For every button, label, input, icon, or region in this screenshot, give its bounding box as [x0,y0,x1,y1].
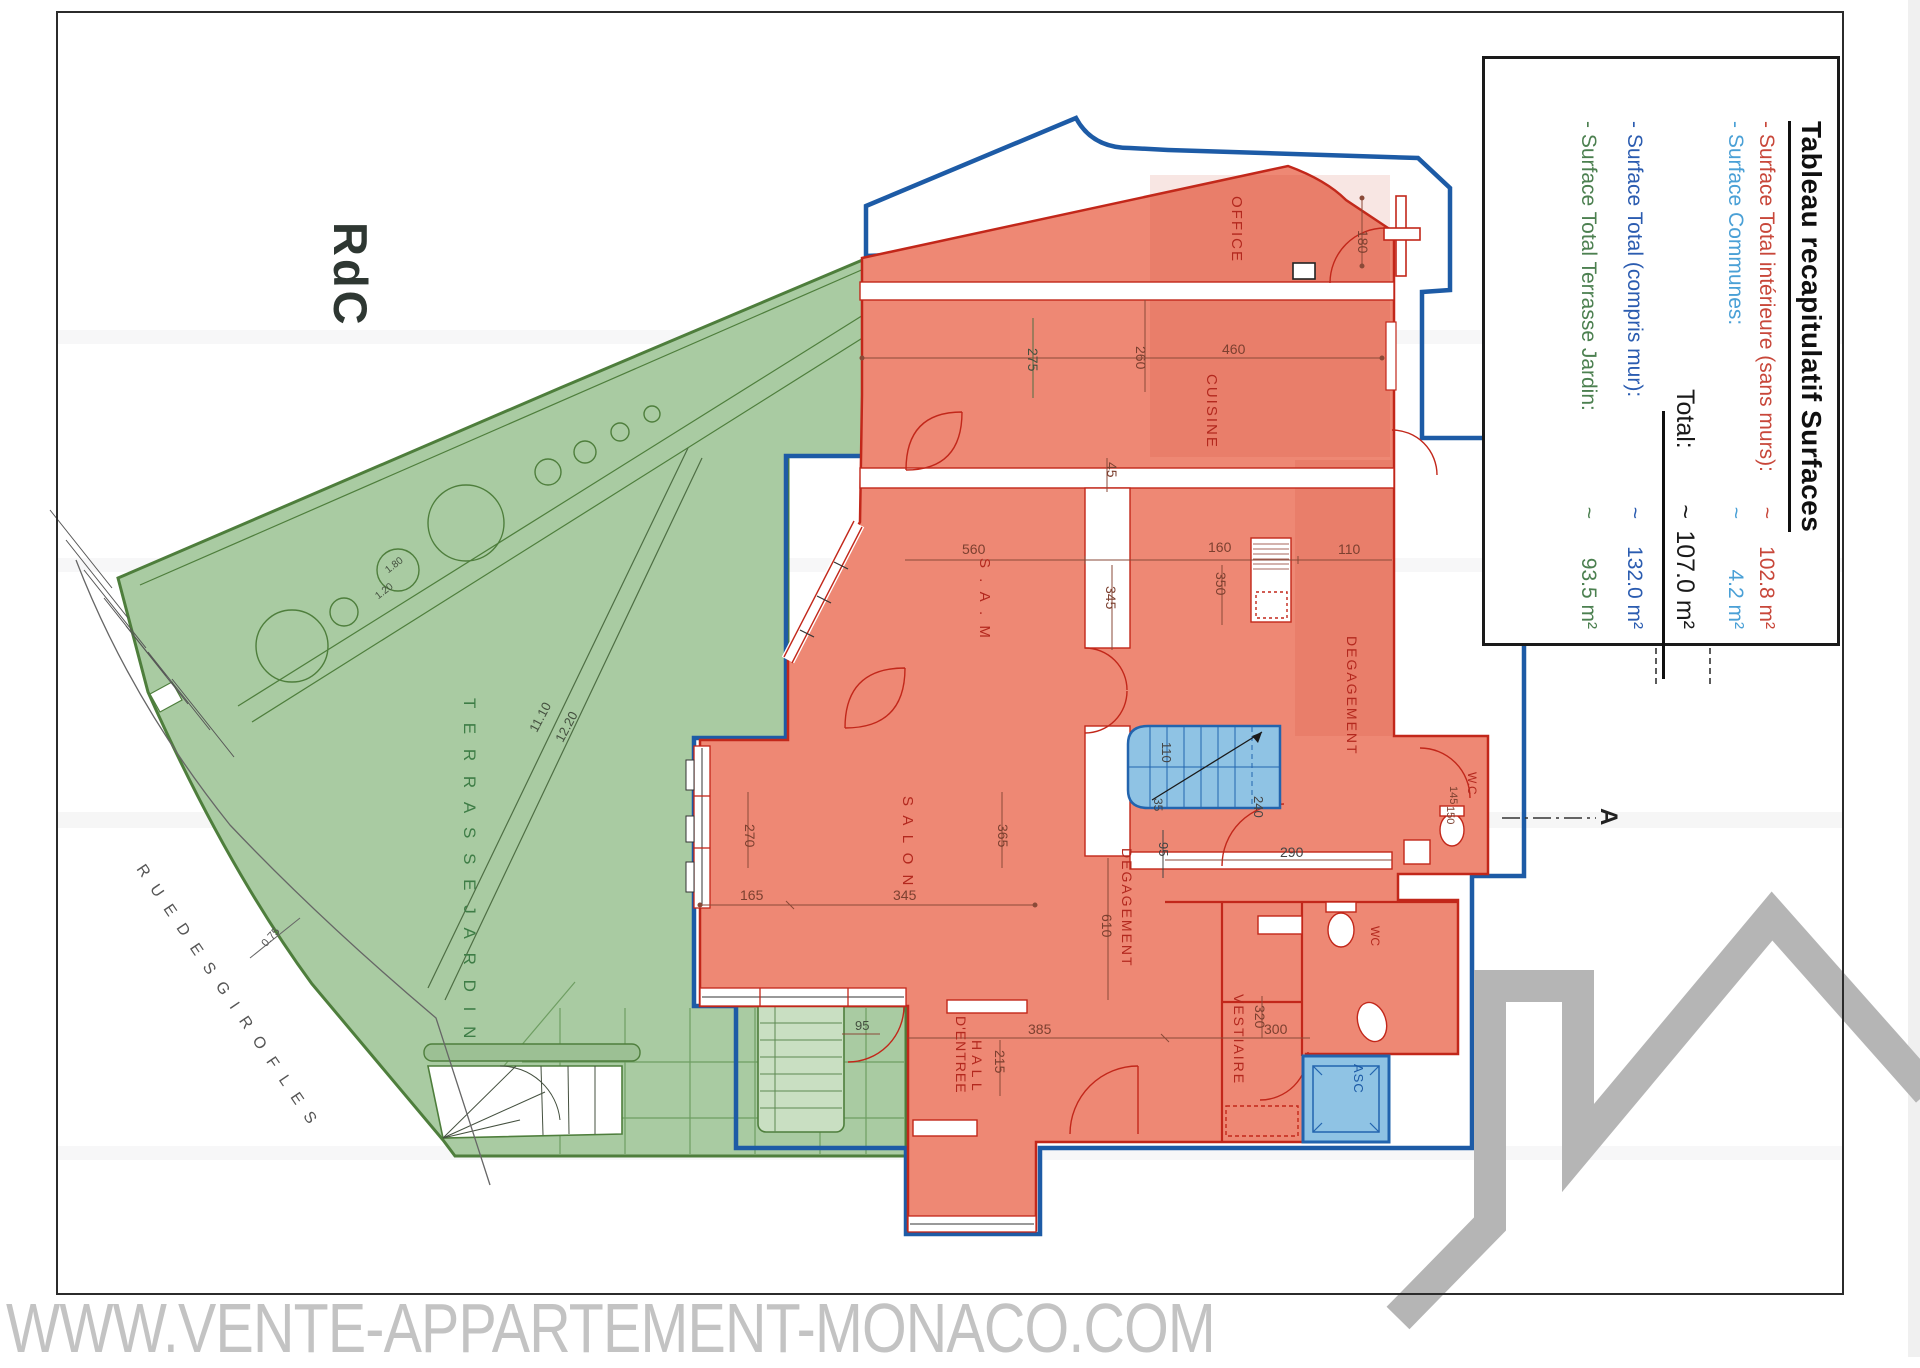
plan-label-room-wc-bottom: WC [1369,926,1381,946]
plan-label-section-a: A [1596,808,1620,825]
street-stair-bottom-left [424,1044,640,1138]
plan-label-dim-275: 275 [1026,348,1040,371]
plan-label-dim-350: 350 [1214,572,1228,595]
legend-row-compris-mur: - Surface Total (compris mur): ~ 132.0 m… [1622,121,1646,629]
plan-label-dim-165: 165 [740,888,763,902]
plan-label-dim-240: 240 [1252,796,1265,818]
legend-value: 93.5 m² [1576,525,1600,629]
legend-value: 102.8 m² [1754,525,1778,629]
plan-label-room-sam: S . A . M [977,558,992,641]
legend-value: 132.0 m² [1622,525,1646,629]
legend-approx: ~ [1576,507,1600,525]
floor-title-rdc: RdC [323,222,378,328]
section-marker [1502,648,1710,818]
plan-label-dim-345-v: 345 [1104,586,1118,609]
legend-row-interieure: - Surface Total intérieure (sans murs): … [1754,121,1778,629]
legend-value: 107.0 m² [1670,525,1699,629]
legend-label: - Surface Communes: [1723,121,1747,325]
plan-label-room-asc: ASC [1352,1064,1365,1094]
plan-label-dim-270: 270 [743,824,757,847]
plan-label-room-hall: H A L L [970,1040,984,1092]
plan-label-room-degagement-bottom: DEGAGEMENT [1120,848,1134,968]
plan-label-room-vestiaire: VESTIAIRE [1232,994,1246,1085]
legend-approx: ~ [1754,507,1778,525]
legend-label: - Surface Total (compris mur): [1622,121,1646,397]
plan-label-dim-150: 150 [1444,806,1455,824]
watermark: WWW.VENTE-APPARTEMENT-MONACO.COM [6,1288,1215,1368]
plan-label-dim-95-stairs: 95 [1157,842,1170,856]
plan-label-dim-260: 260 [1134,346,1148,369]
plan-label-dim-215: 215 [993,1050,1007,1073]
scanned-floor-plan-page: RdC OFFICECUISINES . A . MS A L O NDEGAG… [0,0,1920,1357]
plan-label-dim-560: 560 [962,542,985,556]
plan-label-dim-460: 460 [1222,342,1245,356]
plan-label-dim-365: 365 [996,824,1010,847]
terrace-stair-bottom [758,990,844,1132]
plan-label-dim-35: 35 [1152,798,1164,811]
plan-label-dim-45: 45 [1105,462,1119,478]
plan-label-room-office: OFFICE [1229,196,1244,263]
legend-approx: ~ [1622,507,1646,525]
plan-label-room-cuisine: CUISINE [1204,374,1219,449]
plan-label-dim-145: 145 [1447,786,1458,804]
plan-label-room-degagement-right: DEGAGEMENT [1345,636,1359,756]
house-logo-icon [1398,916,1920,1318]
plan-label-dim-95-terrace: 95 [855,1019,869,1032]
legend-row-terrasse-jardin: - Surface Total Terrasse Jardin: ~ 93.5 … [1576,121,1600,629]
legend-total-divider [1662,411,1665,679]
legend-label: - Surface Total intérieure (sans murs): [1754,121,1778,472]
legend-title: Tableau recapitulatif Surfaces [1788,121,1827,532]
plan-label-dim-160: 160 [1208,540,1231,554]
legend-surface-table: Tableau recapitulatif Surfaces - Surface… [1482,56,1840,646]
legend-approx: ~ [1670,504,1699,525]
plan-label-room-hall-entree: D'ENTREE [954,1016,968,1094]
legend-row-communes: - Surface Communes: ~ 4.2 m² [1723,121,1747,629]
plan-label-dim-110-kitchen: 110 [1338,542,1360,556]
plan-label-dim-300: 300 [1264,1022,1287,1036]
legend-label: - Surface Total Terrasse Jardin: [1576,121,1600,411]
plan-label-room-wc-mid: W.C [1466,772,1478,795]
elevator-asc [1303,1056,1389,1142]
plan-label-dim-180: 180 [1356,230,1370,253]
legend-row-total: Total: ~ 107.0 m² [1670,121,1699,629]
plan-label-dim-610: 610 [1100,914,1114,937]
plan-label-dim-290: 290 [1280,845,1303,859]
plan-label-dim-345-h: 345 [893,888,916,902]
plan-label-terrace-label: T E R R A S S E J A R D I N [461,698,478,1043]
legend-value: 4.2 m² [1723,525,1747,629]
legend-approx: ~ [1723,507,1747,525]
plan-label-dim-110-stairs: 110 [1160,742,1173,763]
legend-label: Total: [1670,389,1699,449]
plan-label-room-salon: S A L O N [900,796,915,888]
plan-label-dim-385: 385 [1028,1022,1051,1036]
